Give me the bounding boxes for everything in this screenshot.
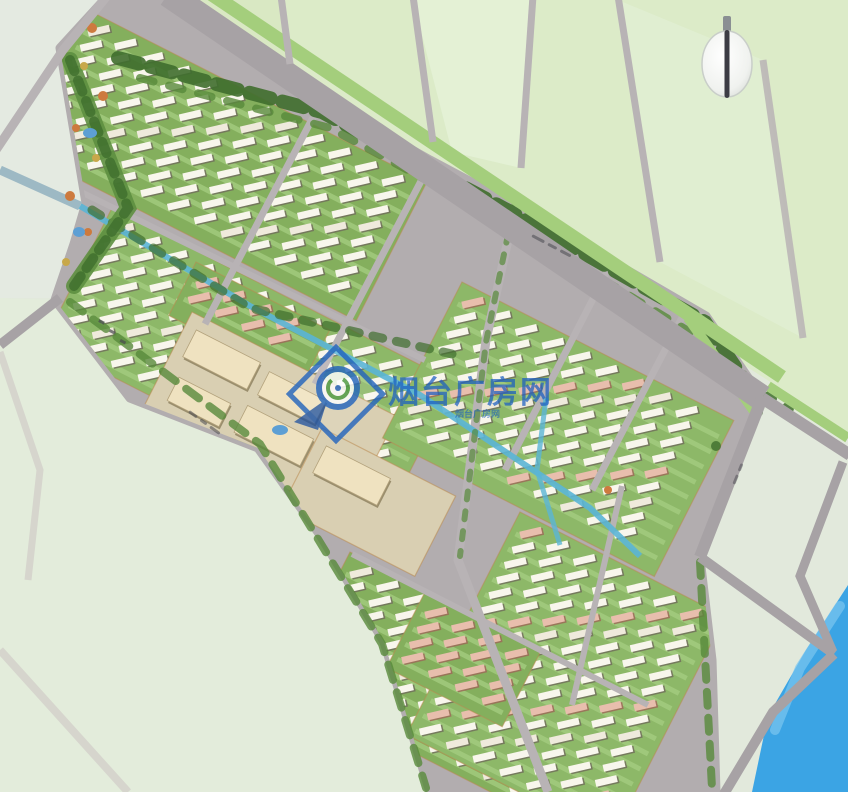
tree-cluster xyxy=(711,441,721,451)
autumn-tree xyxy=(72,124,80,132)
autumn-tree xyxy=(92,154,100,162)
pond xyxy=(83,128,97,138)
compass-needle xyxy=(725,30,730,98)
compass-tab xyxy=(723,16,731,32)
pond xyxy=(73,227,85,237)
autumn-tree xyxy=(62,258,70,266)
map-canvas: 烟台广房网 烟台广房网 xyxy=(0,0,848,792)
watermark-brand-text: 烟台广房网 xyxy=(388,375,553,411)
site-plan-image: 烟台广房网 烟台广房网 xyxy=(0,0,848,792)
autumn-tree xyxy=(98,91,108,101)
autumn-tree xyxy=(65,191,75,201)
autumn-tree xyxy=(84,228,92,236)
logo-center-dot xyxy=(335,385,341,391)
autumn-tree xyxy=(604,486,612,494)
pond xyxy=(272,425,288,435)
autumn-tree xyxy=(80,62,88,70)
watermark-sub-text: 烟台广房网 xyxy=(455,408,500,420)
